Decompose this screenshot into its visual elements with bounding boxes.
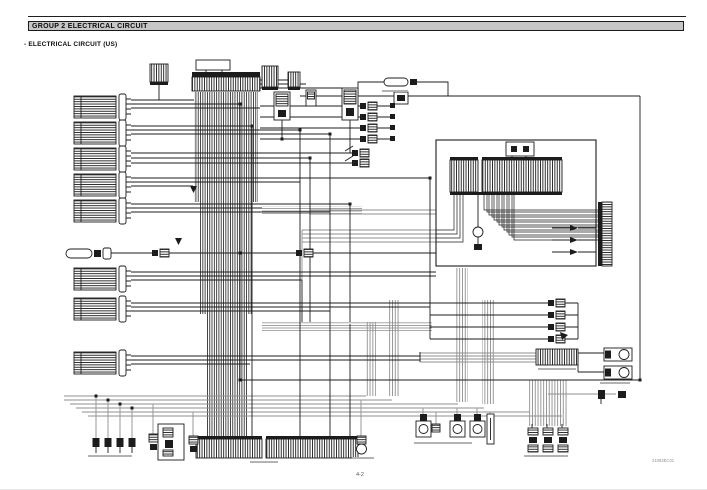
plug xyxy=(598,390,605,399)
buzzer xyxy=(473,227,483,237)
pressure-switch xyxy=(470,414,485,437)
diode-box xyxy=(394,92,408,104)
connector-block xyxy=(74,296,131,322)
connector-block xyxy=(74,266,131,292)
pressure-switch xyxy=(450,414,465,437)
fuse xyxy=(384,78,417,86)
bundle-connector xyxy=(536,349,578,365)
drawing-code: 21092EC01 xyxy=(652,458,675,463)
bottom-connector-strips xyxy=(196,436,358,458)
connector-block xyxy=(74,94,131,120)
plug xyxy=(618,391,626,398)
motor xyxy=(604,348,632,361)
component-box xyxy=(158,424,184,460)
main-harness-connector xyxy=(150,60,300,91)
horn xyxy=(357,444,367,454)
relay xyxy=(306,90,316,106)
page-number: 4-2 xyxy=(356,472,364,478)
relay xyxy=(342,88,358,120)
aux-connector xyxy=(150,64,168,82)
relay xyxy=(274,92,290,120)
motor xyxy=(604,366,632,379)
pressure-switch xyxy=(416,414,431,437)
fuse-link xyxy=(66,248,313,259)
diode-symbols xyxy=(570,225,578,255)
two-pin-connector xyxy=(506,142,534,156)
connector-block xyxy=(74,350,131,376)
connector-block xyxy=(74,198,131,224)
connector-block xyxy=(74,146,131,172)
manual-page: GROUP 2 ELECTRICAL CIRCUIT - ELECTRICAL … xyxy=(0,0,707,490)
circuit-diagram: 4-2 21092EC01 xyxy=(0,0,707,489)
left-connector-blocks xyxy=(74,94,131,376)
control-panel-box xyxy=(436,140,612,266)
connector-block xyxy=(74,172,131,198)
panel-side-connector xyxy=(602,202,612,266)
connector-block xyxy=(74,120,131,146)
inline-connector xyxy=(152,249,169,257)
